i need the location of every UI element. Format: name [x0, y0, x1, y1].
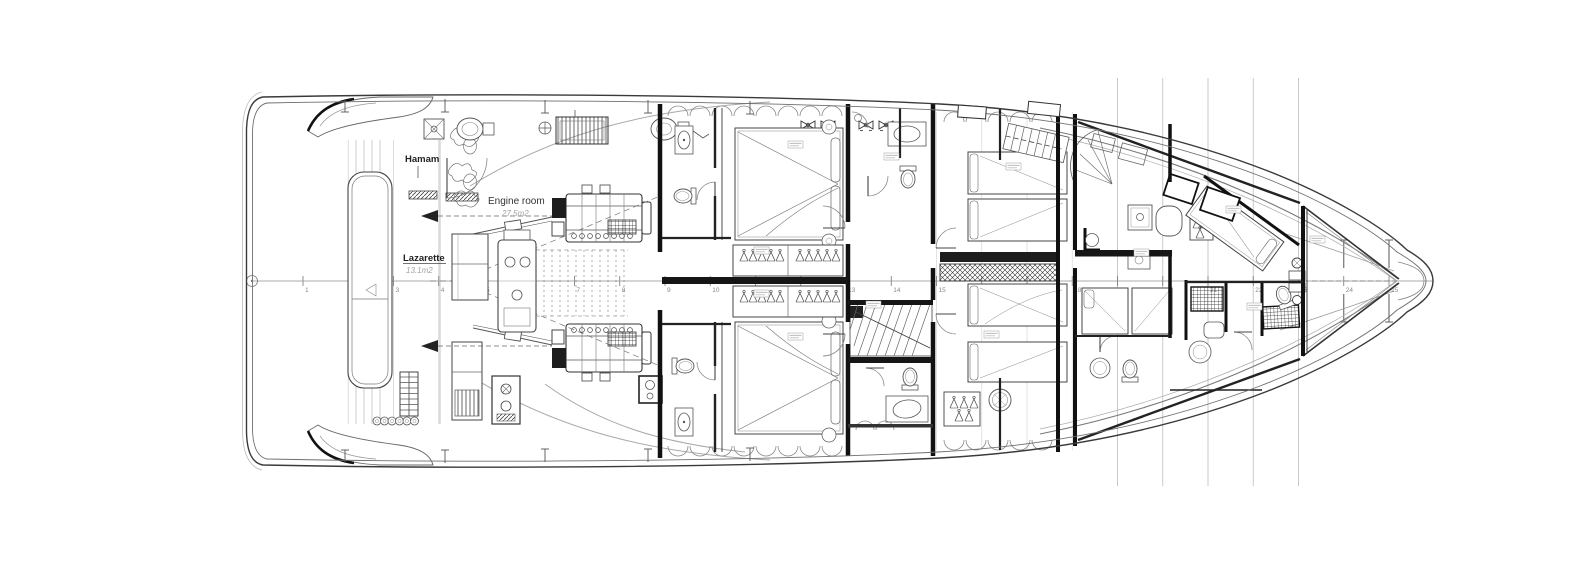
deck-plan-svg: 1234567891011121314151617181920212223242… [0, 0, 1580, 562]
station-number: 4 [441, 287, 445, 294]
wardrobe-bottom [733, 286, 843, 317]
micro-label-tag [866, 301, 881, 308]
lazarette-area: 13.1m2 [406, 266, 433, 275]
station-number: 7 [577, 287, 581, 294]
station-number: 1 [305, 287, 309, 294]
twin-beds-bottom [968, 284, 1067, 382]
pump-cabinet [498, 230, 536, 332]
vip-bed-top [735, 120, 843, 248]
lobby-bathroom-lower [856, 368, 928, 430]
starboard-engine [552, 324, 651, 381]
micro-label-tag [754, 247, 769, 254]
micro-label-tag [984, 331, 999, 338]
micro-label-tag [1310, 236, 1325, 243]
mid-guest-cabins [936, 112, 1069, 450]
aft-bathroom-top [674, 126, 715, 204]
micro-label-tag [884, 153, 899, 160]
closet-lower [944, 392, 980, 426]
engine-room-area: 27.5m2 [501, 209, 529, 218]
engine-room-label: Engine room [488, 196, 545, 207]
stern-wing-bottom [308, 425, 433, 465]
cabin-door-arc [936, 228, 956, 248]
washing-machine [1191, 287, 1223, 311]
aft-bathroom-bottom [672, 358, 715, 436]
crew-shower [1189, 341, 1211, 363]
wardrobe-top [733, 245, 843, 276]
station-number: 9 [667, 287, 671, 294]
hamam-bench [409, 191, 437, 199]
station-number: 14 [893, 287, 901, 294]
station-number: 24 [1346, 287, 1354, 294]
crew-mess [1085, 205, 1182, 269]
aft-deck-fittings [373, 417, 419, 425]
settee-band [940, 252, 1058, 281]
micro-label-tag [788, 333, 803, 340]
stern-wing-top [308, 97, 433, 137]
micro-label-tag [1134, 249, 1149, 256]
micro-label-tag [1226, 206, 1241, 213]
port-engine [552, 185, 651, 242]
watermaker-unit [492, 376, 520, 424]
lazarette-ladder [400, 372, 418, 416]
staircase-down [850, 304, 932, 356]
micro-label-tag [1006, 163, 1021, 170]
transom-garage-hatch [348, 172, 392, 388]
hamam-bench-2 [446, 193, 478, 201]
generator [556, 110, 608, 144]
day-tank [452, 342, 482, 420]
station-number: 3 [396, 287, 400, 294]
fuel-tank [536, 250, 628, 316]
engine-room-cabinet [452, 234, 488, 300]
micro-label-tag [1247, 303, 1262, 310]
lazarette-label: Lazarette [403, 253, 445, 264]
cabin-door-arc [936, 314, 956, 334]
laundry [1189, 284, 1300, 363]
hamam-label: Hamam [405, 154, 439, 165]
micro-label-tag [788, 141, 803, 148]
yacht-lower-deck-plan: 1234567891011121314151617181920212223242… [0, 0, 1580, 562]
station-number: 15 [939, 287, 947, 294]
micro-label-tag [754, 290, 769, 297]
station-number: 10 [712, 287, 720, 294]
